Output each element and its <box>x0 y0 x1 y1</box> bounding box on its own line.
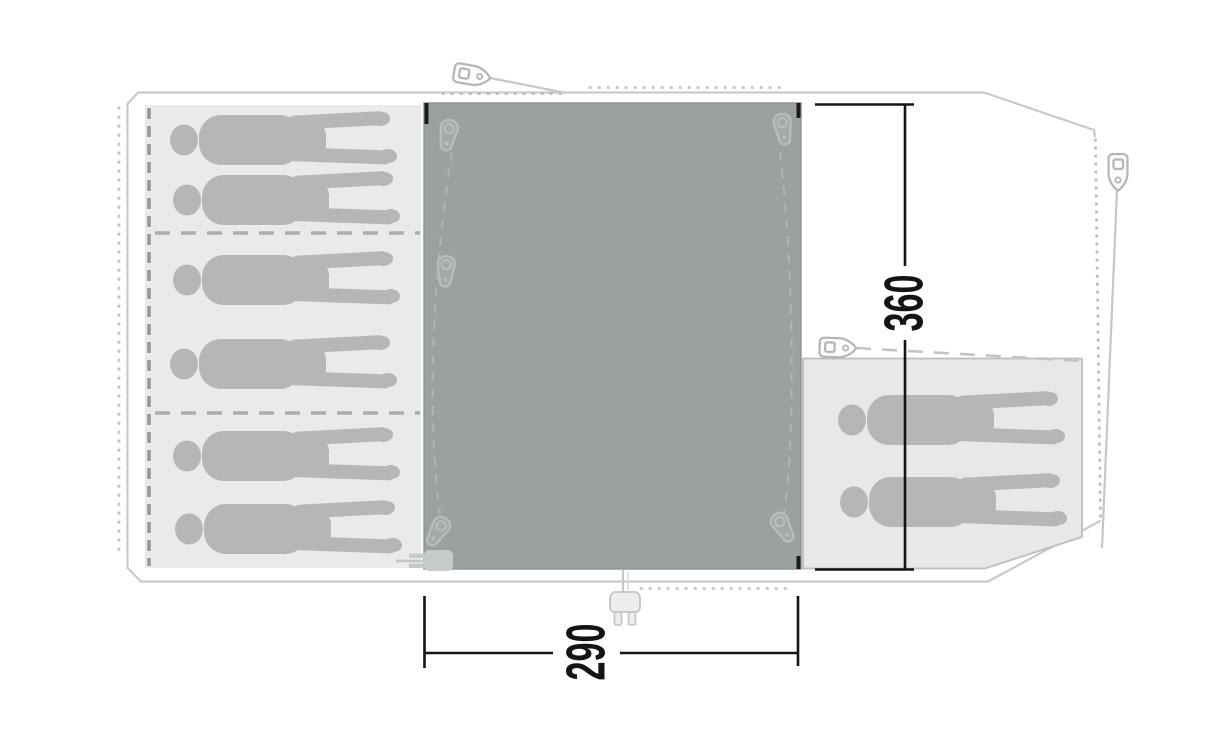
right-edge-dotted-zip <box>1096 140 1101 517</box>
guyline-middle <box>819 338 1082 361</box>
peg-icon <box>1109 154 1128 191</box>
power-cable-entry-icon <box>610 570 640 625</box>
living-room <box>396 103 801 571</box>
annex-right <box>803 359 1082 569</box>
sleeping-cabin-left <box>145 105 421 568</box>
peg-icon <box>819 338 856 358</box>
guyline-top <box>452 63 566 93</box>
depth-dimension-label: 360 <box>873 275 934 332</box>
tent-floorplan: 360 290 <box>0 0 1230 745</box>
tent-floorplan-page: 360 290 <box>0 0 1230 745</box>
width-dimension-label: 290 <box>555 624 616 681</box>
guyline-right <box>1102 154 1128 548</box>
peg-icon <box>452 63 491 88</box>
